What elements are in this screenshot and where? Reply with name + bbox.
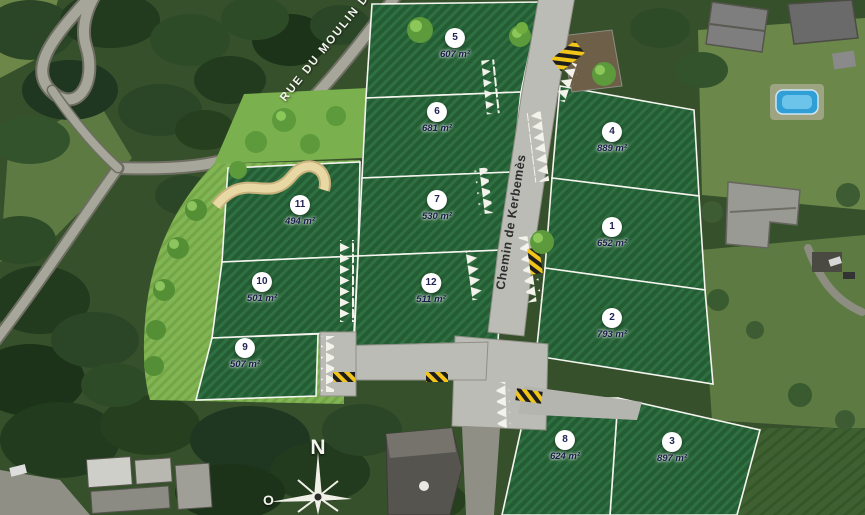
subdivision-plan-map: 1 652 m² 2 793 m² 3 897 m² 4 889 m² 5 60… [0, 0, 865, 515]
plot-10-shape [212, 256, 358, 338]
bottom-house [386, 428, 462, 515]
south-lane [462, 426, 500, 515]
plot-5-shape [366, 2, 540, 98]
aerial-plan-graphics [0, 0, 865, 515]
plot-9-shape [196, 334, 318, 400]
